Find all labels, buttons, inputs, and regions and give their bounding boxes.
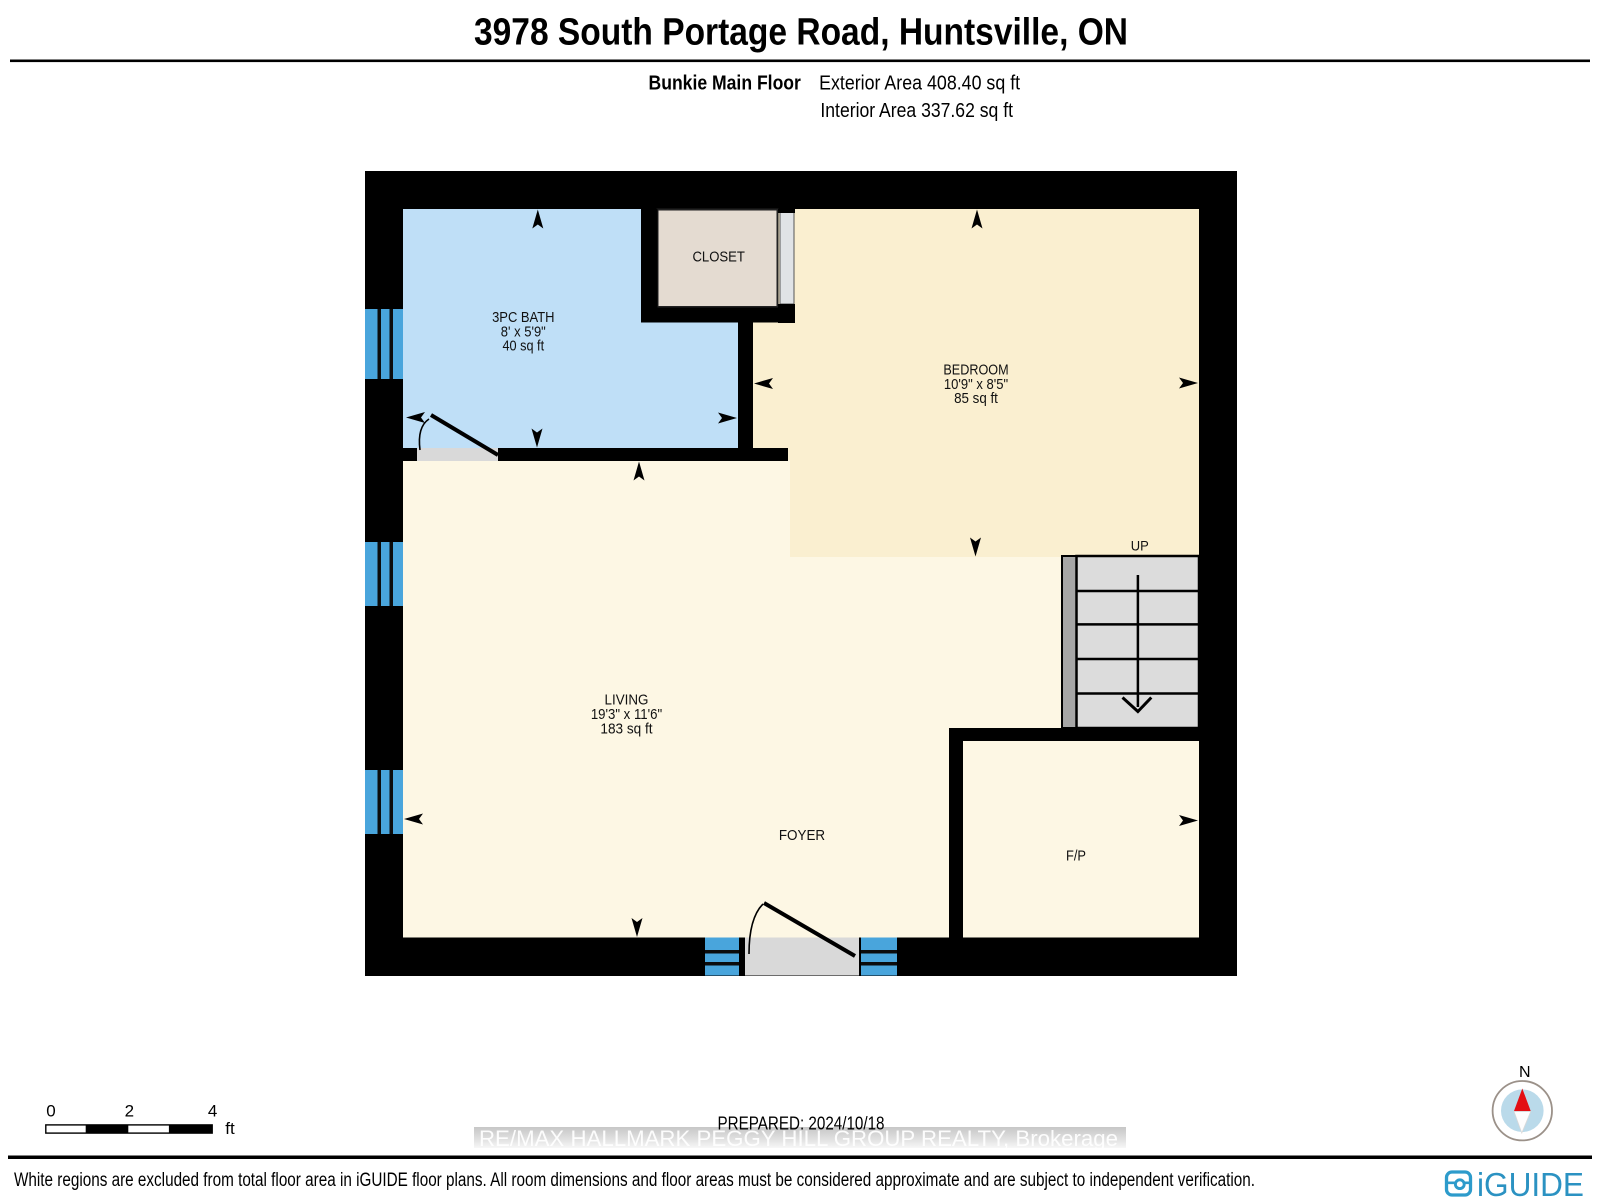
svg-text:Bunkie Main Floor: Bunkie Main Floor xyxy=(649,71,801,94)
svg-text:CLOSET: CLOSET xyxy=(692,249,745,266)
svg-text:0: 0 xyxy=(46,1102,55,1121)
svg-text:N: N xyxy=(1519,1064,1531,1081)
svg-text:F/P: F/P xyxy=(1066,848,1086,865)
svg-text:2: 2 xyxy=(125,1102,134,1121)
svg-text:White regions are excluded fro: White regions are excluded from total fl… xyxy=(14,1170,1255,1191)
svg-text:PREPARED: 2024/10/18: PREPARED: 2024/10/18 xyxy=(718,1113,885,1134)
svg-text:iGUIDE: iGUIDE xyxy=(1477,1167,1584,1198)
svg-text:Interior Area 337.62 sq ft: Interior Area 337.62 sq ft xyxy=(820,99,1013,122)
svg-text:183 sq ft: 183 sq ft xyxy=(600,720,653,737)
svg-text:85 sq ft: 85 sq ft xyxy=(954,390,999,407)
svg-text:Exterior Area 408.40 sq ft: Exterior Area 408.40 sq ft xyxy=(819,71,1020,94)
svg-text:ft: ft xyxy=(225,1119,235,1138)
svg-text:4: 4 xyxy=(208,1102,217,1121)
svg-text:FOYER: FOYER xyxy=(779,827,825,844)
svg-text:40 sq ft: 40 sq ft xyxy=(503,338,545,355)
svg-text:UP: UP xyxy=(1131,538,1149,554)
svg-text:3978 South Portage Road, Hunts: 3978 South Portage Road, Huntsville, ON xyxy=(474,12,1128,54)
